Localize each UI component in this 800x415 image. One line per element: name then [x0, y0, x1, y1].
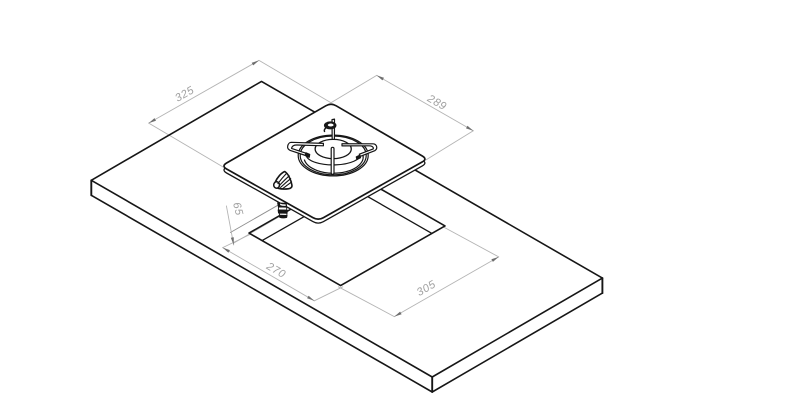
svg-text:325: 325: [173, 84, 197, 105]
svg-text:65: 65: [230, 201, 245, 217]
svg-text:305: 305: [415, 278, 439, 299]
